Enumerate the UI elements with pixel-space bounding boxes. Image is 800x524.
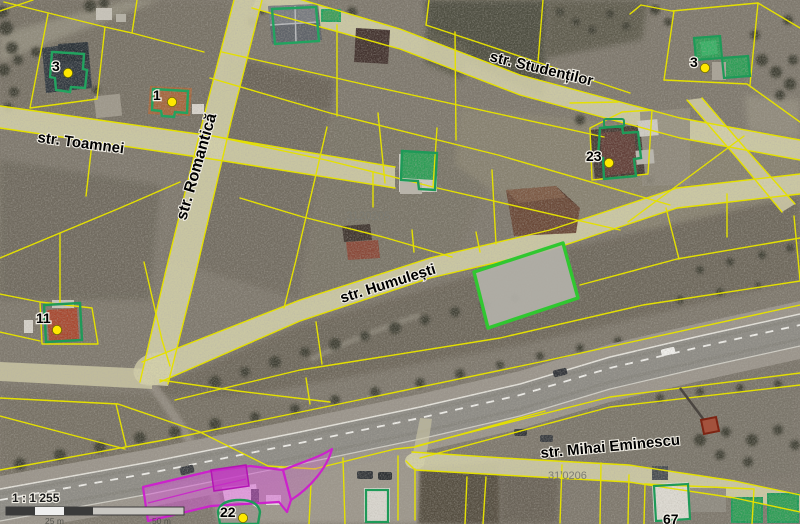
- svg-text:50 m: 50 m: [152, 516, 171, 524]
- svg-text:1: 1: [153, 87, 161, 103]
- svg-text:11: 11: [36, 310, 51, 326]
- svg-text:3: 3: [690, 54, 698, 70]
- svg-text:23: 23: [586, 148, 602, 164]
- svg-text:3120205: 3120205: [346, 211, 391, 223]
- svg-text:25 m: 25 m: [45, 516, 64, 524]
- svg-text:22: 22: [220, 504, 236, 520]
- svg-text:1 : 1 255: 1 : 1 255: [12, 491, 60, 505]
- svg-text:67: 67: [663, 511, 679, 524]
- svg-text:3: 3: [52, 58, 60, 74]
- svg-text:31ꞌ0206: 31ꞌ0206: [548, 470, 587, 482]
